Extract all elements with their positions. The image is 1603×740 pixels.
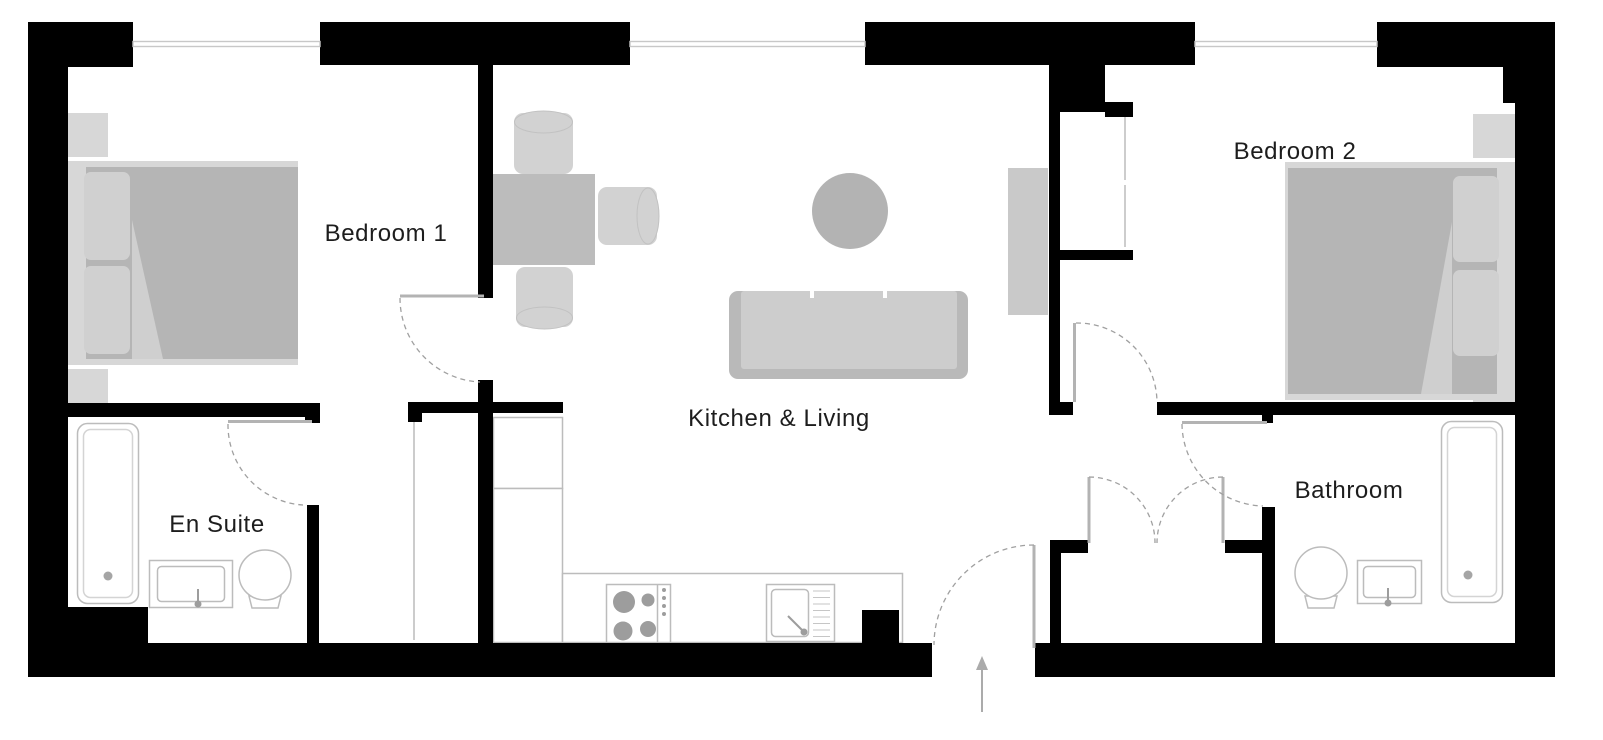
kitchen-counter-icon <box>494 489 563 643</box>
sofa-seat <box>741 291 957 369</box>
bathroom-fixtures <box>1295 422 1503 609</box>
door-swing-icon <box>400 298 480 382</box>
wall <box>1035 643 1555 677</box>
burner <box>642 594 655 607</box>
washbasin-icon <box>1358 561 1422 607</box>
sideboard-icon <box>1008 168 1048 315</box>
door-swing-icon <box>1182 424 1263 506</box>
wall <box>1225 540 1275 553</box>
wall <box>1262 507 1275 643</box>
entrance-arrow-icon <box>976 656 988 712</box>
wall <box>1503 67 1515 103</box>
wall <box>64 403 320 417</box>
room-label-en-suite: En Suite <box>169 511 265 538</box>
hob-icon <box>607 585 671 643</box>
wall <box>865 22 1195 65</box>
pillow-icon <box>84 172 130 260</box>
bedroom-1-furniture <box>68 113 298 413</box>
dining-chair-icon <box>514 111 573 174</box>
hob-control-dot <box>662 612 666 616</box>
door-swing-icon <box>228 424 303 505</box>
wall <box>148 643 932 677</box>
wall <box>28 22 133 67</box>
door-swing-icon <box>1089 477 1155 543</box>
wall <box>408 413 422 422</box>
wall <box>28 607 148 677</box>
pillow-icon <box>1453 270 1499 356</box>
dining-set <box>493 111 659 329</box>
dining-chair-icon <box>516 267 573 329</box>
wall <box>862 610 899 643</box>
wall <box>1157 402 1515 415</box>
burner <box>614 622 633 641</box>
wall <box>478 380 493 643</box>
wall <box>1060 250 1133 260</box>
door-swing-icon <box>1076 323 1157 402</box>
kitchen-sink-icon <box>767 585 835 642</box>
sofa-cushion-gap <box>883 291 887 298</box>
washbasin-icon <box>150 561 233 608</box>
dining-table-icon <box>493 174 595 265</box>
window-icon <box>630 42 865 47</box>
bathtub-icon <box>78 424 139 604</box>
drain-dot <box>104 572 113 581</box>
wall <box>1049 65 1105 112</box>
coffee-table-icon <box>812 173 888 249</box>
wall <box>408 402 563 413</box>
toilet-icon <box>1295 547 1347 608</box>
wall <box>478 65 493 298</box>
toilet-icon <box>239 550 291 608</box>
dining-chair-icon <box>598 187 659 245</box>
window-icon <box>133 42 320 47</box>
wall <box>28 22 68 677</box>
wall <box>1515 22 1555 677</box>
wall <box>307 505 319 643</box>
room-label-bathroom: Bathroom <box>1295 477 1404 504</box>
window-icon <box>1195 42 1377 47</box>
nightstand-icon <box>68 113 108 157</box>
hob-control-dot <box>662 604 666 608</box>
nightstand-icon <box>1473 114 1515 158</box>
floor-plan-page: Bedroom 1 Bedroom 2 Kitchen & Living En … <box>0 0 1603 740</box>
room-label-kitchen-living: Kitchen & Living <box>688 405 870 432</box>
fridge-icon <box>494 418 563 489</box>
wall <box>1105 102 1133 117</box>
room-label-bedroom-1: Bedroom 1 <box>325 220 448 247</box>
tap-dot <box>801 629 808 636</box>
sofa-icon <box>729 291 968 379</box>
door-swing-icon <box>1157 477 1223 543</box>
entrance-door-swing-icon <box>934 545 1034 645</box>
wall <box>1049 402 1073 415</box>
hob-control-dot <box>662 596 666 600</box>
wall <box>320 22 630 65</box>
tap-dot <box>1385 600 1392 607</box>
sofa-cushion-gap <box>810 291 814 298</box>
room-label-bedroom-2: Bedroom 2 <box>1234 138 1357 165</box>
wall <box>1049 65 1060 415</box>
drain-dot <box>1464 571 1473 580</box>
wall <box>1050 540 1061 643</box>
burner <box>640 621 656 637</box>
pillow-icon <box>84 266 130 354</box>
bathtub-icon <box>1442 422 1503 603</box>
burner <box>613 591 635 613</box>
hob-control-dot <box>662 588 666 592</box>
floor-plan: Bedroom 1 Bedroom 2 Kitchen & Living En … <box>0 0 1603 740</box>
pillow-icon <box>1453 176 1499 262</box>
tap-dot <box>195 601 202 608</box>
